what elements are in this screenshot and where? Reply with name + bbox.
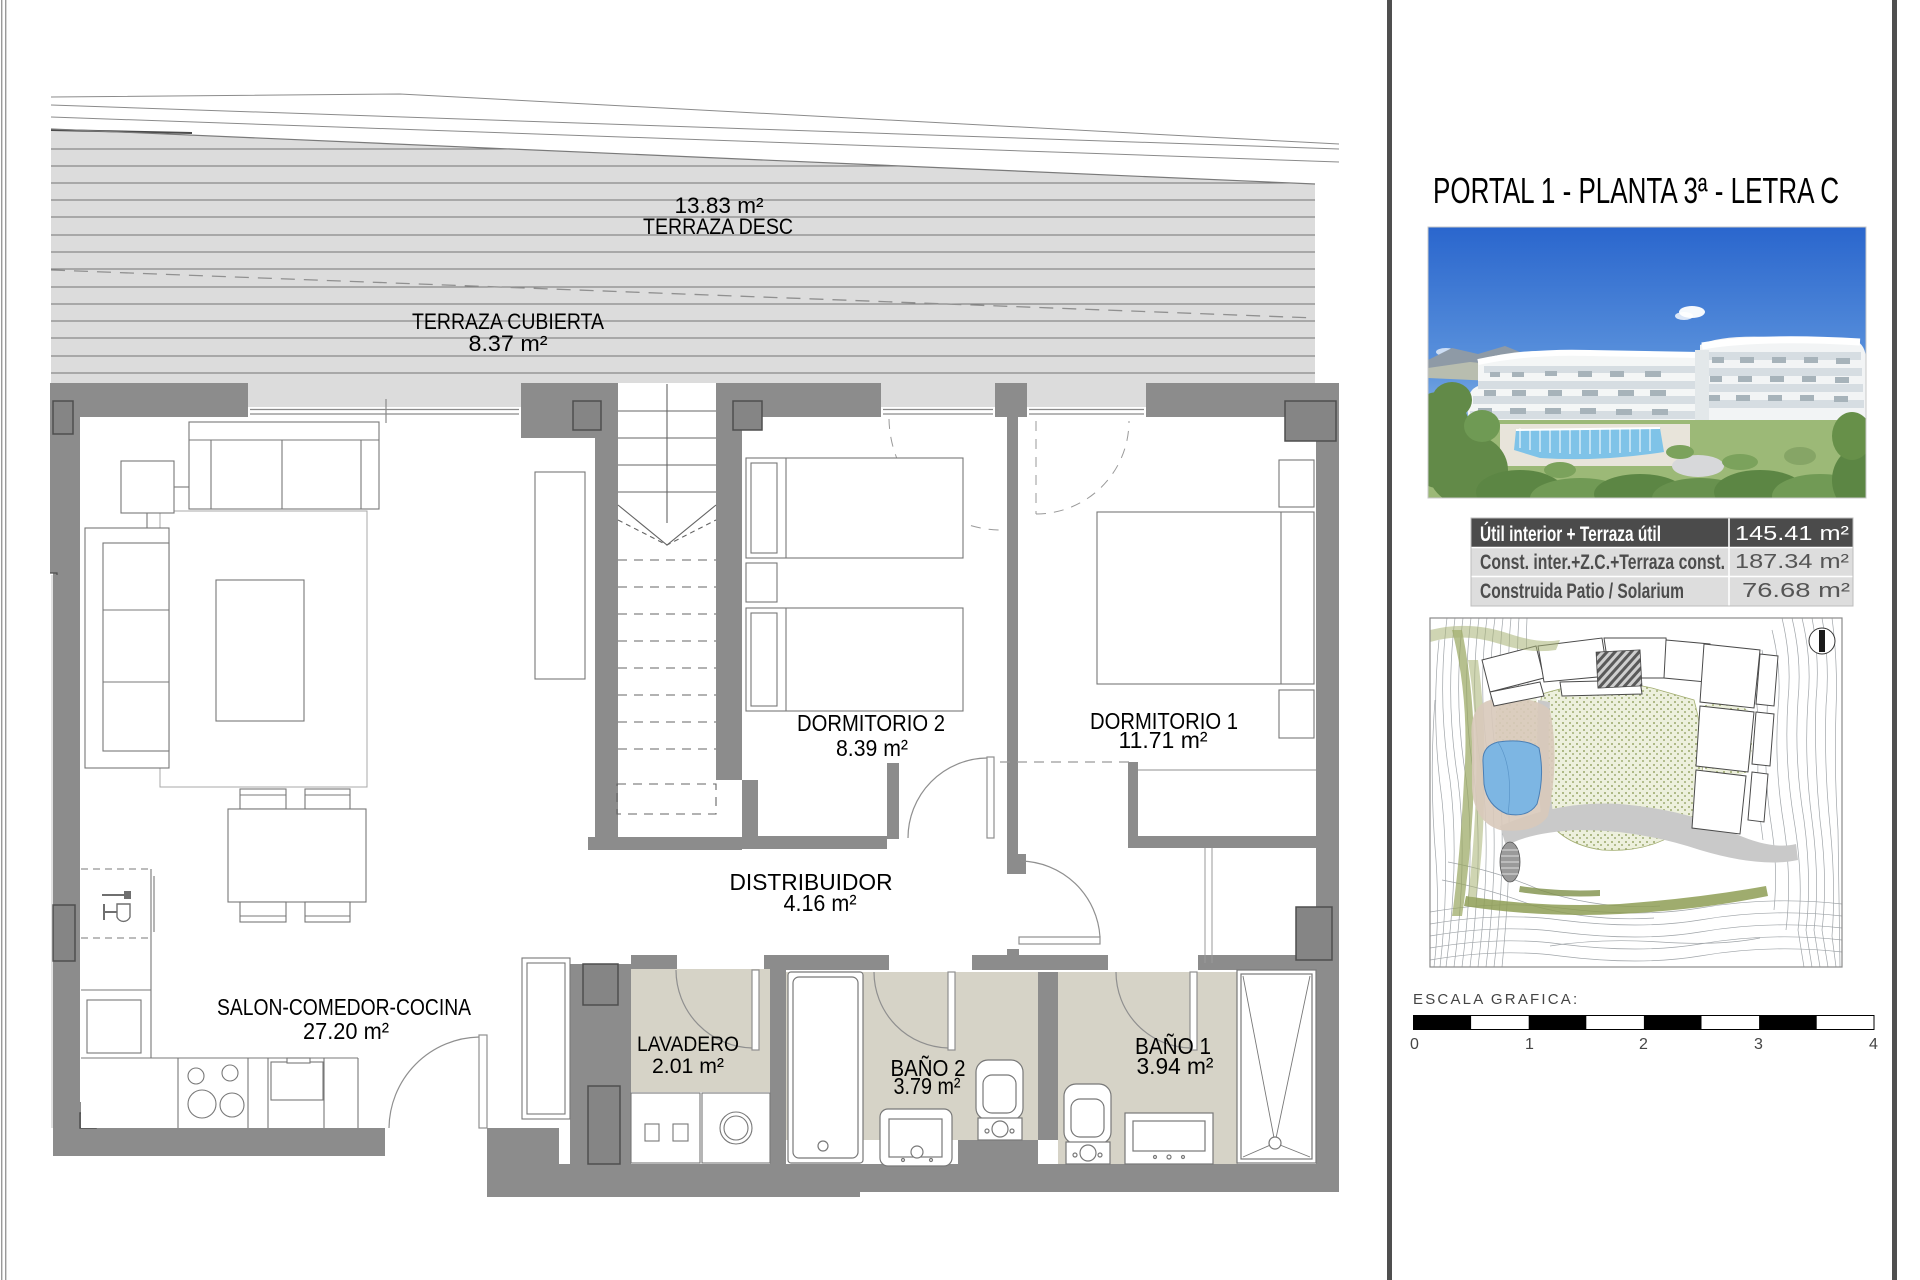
svg-text:3: 3 <box>1754 1036 1763 1053</box>
svg-text:PORTAL 1 - PLANTA 3ª - LETRA C: PORTAL 1 - PLANTA 3ª - LETRA C <box>1433 170 1839 211</box>
svg-text:Construida Patio / Solarium: Construida Patio / Solarium <box>1480 580 1684 603</box>
svg-text:27.20 m²: 27.20 m² <box>303 1018 389 1044</box>
svg-text:2.01 m²: 2.01 m² <box>652 1055 724 1078</box>
svg-text:4.16 m²: 4.16 m² <box>784 890 857 916</box>
svg-text:2: 2 <box>1639 1036 1648 1053</box>
svg-text:1: 1 <box>1525 1036 1534 1053</box>
svg-text:Útil interior + Terraza útil: Útil interior + Terraza útil <box>1480 522 1661 546</box>
svg-text:187.34 m²: 187.34 m² <box>1735 551 1849 573</box>
svg-text:0: 0 <box>1410 1036 1419 1053</box>
svg-text:3.79 m²: 3.79 m² <box>894 1073 961 1099</box>
svg-text:LAVADERO: LAVADERO <box>637 1033 739 1056</box>
svg-text:TERRAZA DESC: TERRAZA DESC <box>643 214 793 239</box>
svg-text:ESCALA GRAFICA:: ESCALA GRAFICA: <box>1413 991 1579 1008</box>
svg-text:8.39 m²: 8.39 m² <box>836 735 908 761</box>
svg-text:4: 4 <box>1869 1036 1878 1053</box>
svg-text:SALON-COMEDOR-COCINA: SALON-COMEDOR-COCINA <box>217 994 472 1020</box>
svg-text:3.94 m²: 3.94 m² <box>1137 1053 1214 1079</box>
svg-text:Const. inter.+Z.C.+Terraza con: Const. inter.+Z.C.+Terraza const. <box>1480 551 1725 574</box>
svg-text:8.37 m²: 8.37 m² <box>469 331 548 356</box>
svg-text:76.68 m²: 76.68 m² <box>1742 580 1850 602</box>
svg-text:11.71 m²: 11.71 m² <box>1119 727 1208 753</box>
svg-text:145.41 m²: 145.41 m² <box>1735 523 1849 545</box>
svg-text:DORMITORIO 2: DORMITORIO 2 <box>797 710 945 736</box>
